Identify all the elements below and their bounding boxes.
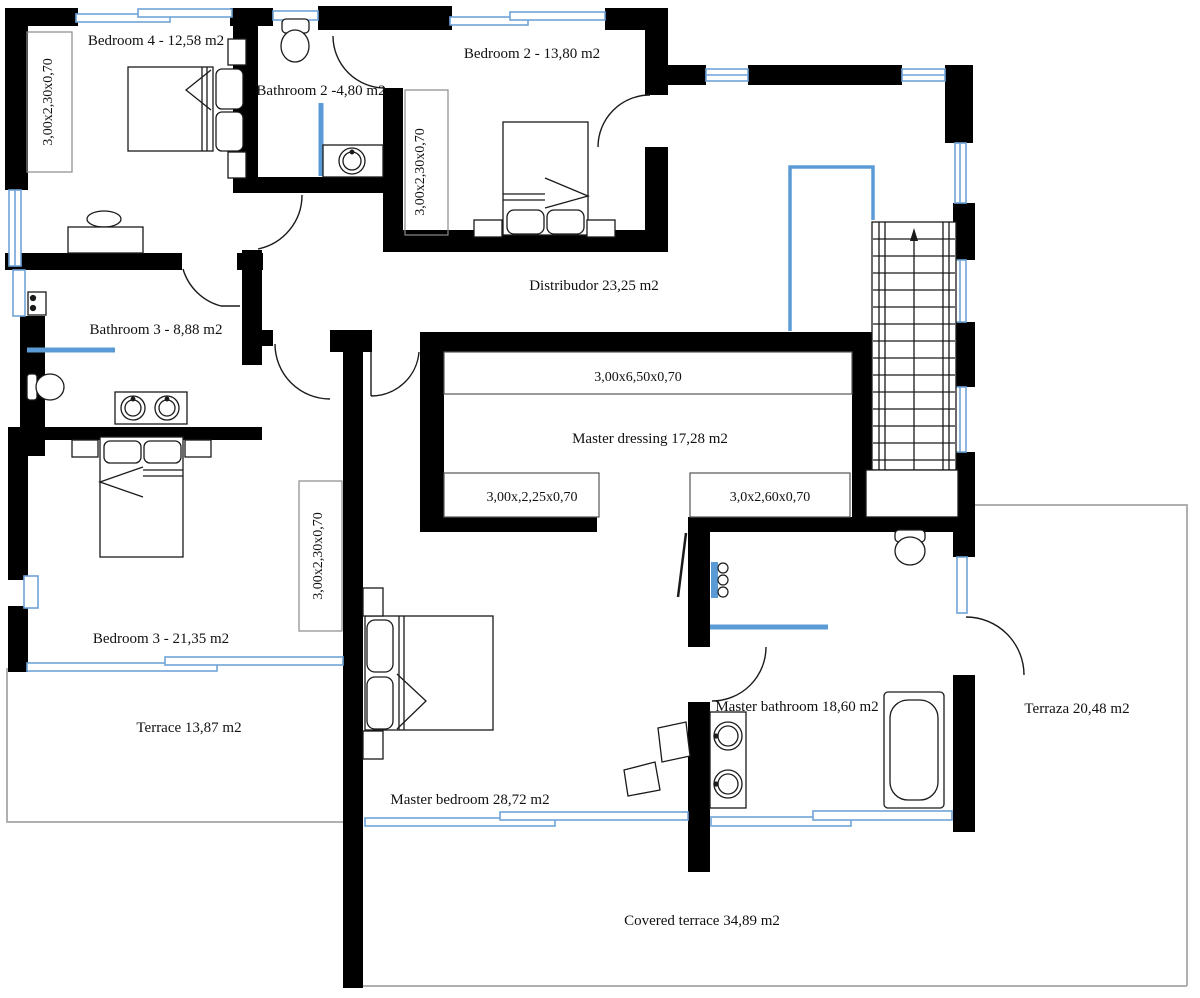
label-terraza: Terraza 20,48 m2: [1024, 701, 1129, 717]
wall-segment: [645, 8, 668, 95]
wall-segment: [330, 330, 372, 352]
wall-segment: [748, 65, 902, 85]
wall-segment: [953, 675, 975, 832]
wall-segment: [343, 350, 363, 988]
dim-closet-bedroom2: 3,00x2,30x0,70: [413, 128, 428, 216]
toilet-bathroom3: [27, 374, 64, 400]
furniture: [27, 19, 944, 808]
chair: [658, 722, 690, 762]
toilet-master-bathroom: [895, 530, 925, 565]
terrace-left-outline: [7, 668, 343, 822]
sink-bathroom2: [323, 145, 383, 177]
bed-bedroom3: [72, 437, 211, 557]
label-bedroom2: Bedroom 2 - 13,80 m2: [464, 46, 600, 62]
wall-segment: [383, 88, 403, 250]
door-bedroom4: [258, 195, 302, 249]
door-hallway: [371, 352, 419, 396]
door-bathroom3: [183, 269, 240, 306]
radiator-knob: [718, 587, 728, 597]
desk-chair: [87, 211, 121, 227]
label-distributor: Distribudor 23,25 m2: [529, 278, 659, 294]
vanity-bathroom3: [115, 392, 187, 424]
wall-segment: [665, 65, 706, 85]
label-bedroom4: Bedroom 4 - 12,58 m2: [88, 33, 224, 49]
floor-plan-canvas: Bedroom 4 - 12,58 m2 Bathroom 2 -4,80 m2…: [0, 0, 1200, 998]
wall-segment: [420, 332, 852, 352]
wall-segment: [260, 330, 273, 346]
wall-segment: [5, 8, 28, 190]
label-master-bedroom: Master bedroom 28,72 m2: [390, 792, 549, 808]
door-bathroom2: [333, 36, 385, 88]
window: [510, 12, 605, 20]
window: [957, 557, 967, 613]
staircase: [866, 222, 958, 517]
small-sink-bathroom3: [28, 292, 46, 315]
nightstand: [587, 220, 615, 237]
bed-bedroom2: [474, 122, 615, 237]
dim-dressing-left: 3,00x,2,25x0,70: [487, 490, 578, 505]
label-covered-terrace: Covered terrace 34,89 m2: [624, 913, 780, 929]
label-bathroom2: Bathroom 2 -4,80 m2: [256, 83, 385, 99]
bathtub: [884, 692, 944, 808]
wall-segment: [8, 440, 28, 580]
wall-segment: [688, 702, 710, 872]
label-terrace: Terrace 13,87 m2: [136, 720, 241, 736]
dim-dressing-top: 3,00x6,50x0,70: [594, 370, 682, 385]
door-bedroom3: [275, 344, 330, 399]
railing-line: [790, 167, 873, 331]
wall-segment: [318, 6, 452, 30]
dim-closet-bedroom4: 3,00x2,30x0,70: [41, 58, 56, 146]
wall-segment: [420, 332, 444, 530]
terrace-outlines: [7, 505, 1187, 986]
desk-bedroom4: [68, 211, 143, 253]
radiator-knob: [718, 563, 728, 573]
wall-segment: [233, 177, 403, 193]
desk: [68, 227, 143, 253]
wall-segment: [20, 8, 78, 26]
window: [24, 576, 38, 608]
window: [138, 9, 232, 17]
toilet-bathroom2: [281, 19, 309, 62]
dim-dressing-right: 3,0x2,60x0,70: [730, 490, 811, 505]
wall-segment: [688, 532, 710, 647]
nightstand: [228, 39, 246, 65]
label-bathroom3: Bathroom 3 - 8,88 m2: [90, 322, 223, 338]
wall-segment: [945, 65, 973, 143]
window: [813, 811, 952, 820]
wall-segment: [242, 250, 262, 365]
label-master-dressing: Master dressing 17,28 m2: [572, 431, 728, 447]
window: [500, 812, 688, 820]
window: [13, 270, 25, 316]
door-leaf-master-bedroom: [678, 533, 686, 597]
door-master-bathroom: [712, 647, 766, 701]
label-master-bathroom: Master bathroom 18,60 m2: [715, 699, 878, 715]
window: [165, 657, 343, 665]
door-bedroom2: [598, 95, 650, 147]
vanity-master-bathroom: [710, 712, 746, 808]
terraza-right-outline: [975, 505, 1187, 986]
nightstand: [185, 440, 211, 457]
floor-plan: Bedroom 4 - 12,58 m2 Bathroom 2 -4,80 m2…: [0, 0, 1200, 998]
bed-bedroom4: [128, 39, 246, 178]
chair: [624, 762, 660, 796]
nightstand: [228, 152, 246, 178]
radiator-knob: [718, 575, 728, 585]
nightstand: [474, 220, 502, 237]
wall-segment: [8, 606, 28, 672]
nightstand: [363, 731, 383, 759]
nightstand: [363, 588, 383, 616]
radiator: [711, 562, 718, 598]
stair-railing: [790, 167, 873, 331]
nightstand: [72, 440, 98, 457]
wall-segment: [420, 517, 597, 532]
bed-master-bedroom: [363, 588, 493, 759]
wall-segment: [5, 253, 182, 270]
door-terraza: [966, 617, 1024, 675]
dim-closet-bedroom3: 3,00x2,30x0,70: [311, 512, 326, 600]
label-bedroom3: Bedroom 3 - 21,35 m2: [93, 631, 229, 647]
stair-landing: [866, 470, 958, 517]
